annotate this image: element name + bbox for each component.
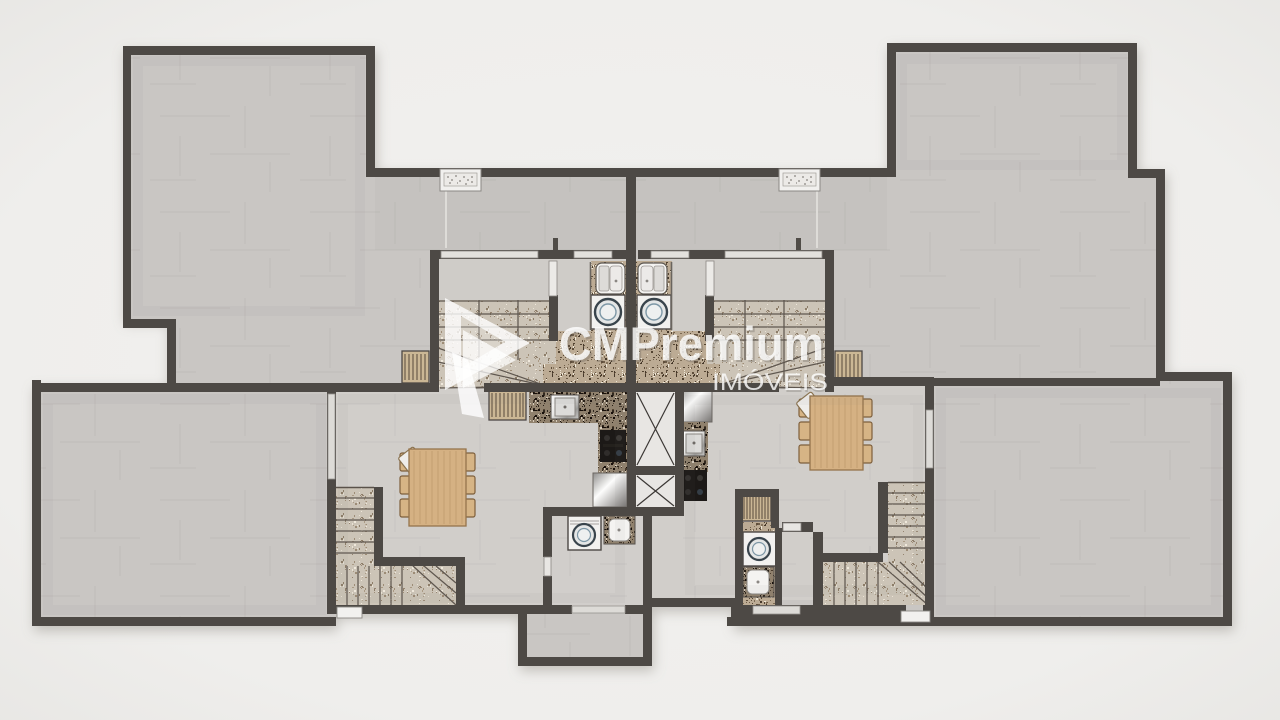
svg-text:CMPremium: CMPremium [559,317,824,370]
svg-text:IMÓVEIS: IMÓVEIS [712,369,828,396]
